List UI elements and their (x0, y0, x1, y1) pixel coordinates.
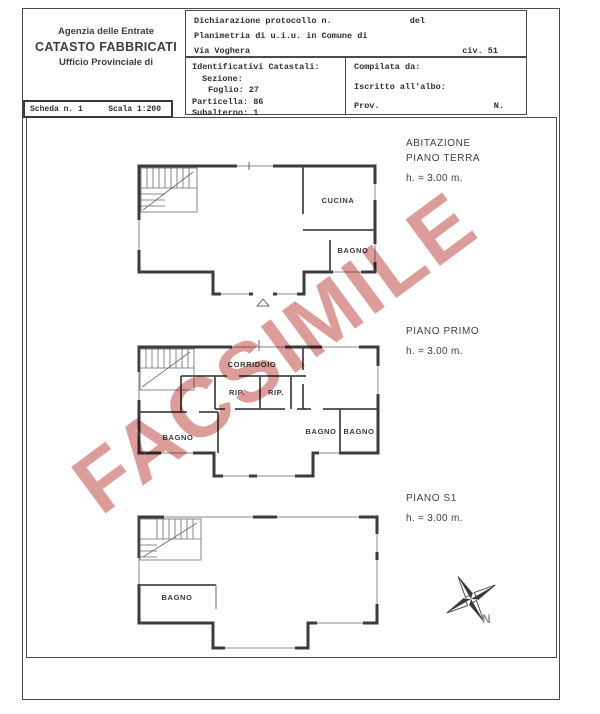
agency-name: Agenzia delle Entrate (28, 26, 184, 37)
label-piano-s1: PIANO S1 h. = 3.00 m. (406, 491, 463, 526)
room-label-bagno: BAGNO (162, 593, 193, 602)
iscritto-label: Iscritto all'albo: (354, 82, 518, 92)
label-piano-primo: PIANO PRIMO h. = 3.00 m. (406, 324, 479, 359)
catastal-identifiers: Identificativi Catastali: Sezione: Fogli… (186, 58, 346, 114)
piano-primo-height: h. = 3.00 m. (406, 344, 479, 359)
planimetria-label: Planimetria di u.i.u. in Comune di (194, 31, 367, 41)
agency-header: Agenzia delle Entrate CATASTO FABBRICATI… (28, 26, 184, 68)
register-title: CATASTO FABBRICATI (28, 40, 184, 54)
scale-label: Scala 1:200 (108, 105, 161, 114)
piano-s1-height: h. = 3.00 m. (406, 511, 463, 526)
declaration-box: Dichiarazione protocollo n. del Planimet… (185, 10, 527, 57)
room-label-bagno-right-1: BAGNO (306, 427, 337, 436)
room-label-cucina: CUCINA (322, 196, 355, 205)
compass-rose-icon (443, 573, 503, 633)
staircase-icon (140, 519, 201, 560)
prov-row: Prov. N. (354, 101, 518, 111)
street-label: Via Voghera (194, 46, 250, 56)
protocol-row: Dichiarazione protocollo n. del (194, 16, 518, 26)
compiler-box: Compilata da: Iscritto all'albo: Prov. N… (346, 58, 526, 114)
sezione-field: Sezione: (192, 74, 339, 84)
north-label: N (482, 612, 491, 626)
compilata-label: Compilata da: (354, 62, 518, 72)
piano-s1-label: PIANO S1 (406, 491, 463, 506)
scheda-number: Scheda n. 1 (30, 105, 83, 114)
planimetria-row: Planimetria di u.i.u. in Comune di (194, 31, 518, 41)
del-label: del (410, 16, 425, 26)
room-label-bagno-right-2: BAGNO (344, 427, 375, 436)
prov-label: Prov. (354, 101, 380, 111)
scheda-scale-bar: Scheda n. 1 Scala 1:200 (23, 100, 173, 118)
identifiers-box: Identificativi Catastali: Sezione: Fogli… (185, 57, 527, 115)
foglio-field: Foglio: 27 (192, 85, 339, 95)
civic-number: civ. 51 (462, 46, 498, 56)
provincial-office-label: Ufficio Provinciale di (28, 57, 184, 68)
n-label: N. (494, 101, 504, 111)
particella-field: Particella: 86 (192, 97, 339, 107)
staircase-icon (141, 168, 197, 212)
identifiers-title: Identificativi Catastali: (192, 62, 339, 72)
cadastral-floorplan-sheet: Agenzia delle Entrate CATASTO FABBRICATI… (0, 0, 600, 714)
piano-primo-label: PIANO PRIMO (406, 324, 479, 339)
floor-plan-piano-s1: BAGNO (137, 512, 382, 660)
protocol-label: Dichiarazione protocollo n. (194, 16, 332, 26)
address-row: Via Voghera civ. 51 (194, 46, 518, 56)
